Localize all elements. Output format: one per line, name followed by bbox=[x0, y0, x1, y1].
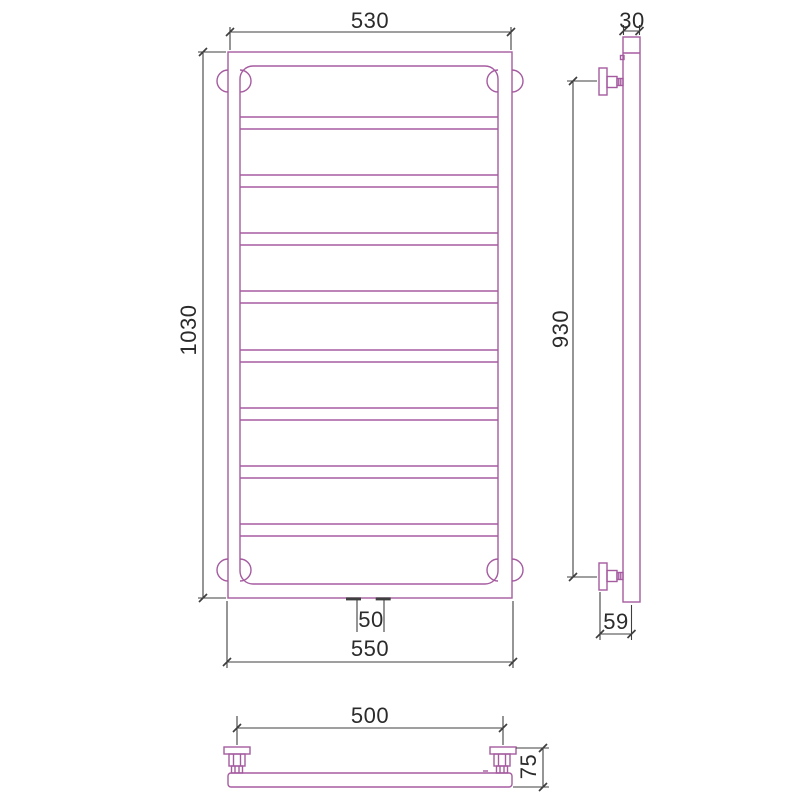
bracket-stem bbox=[494, 754, 510, 766]
dimension-label-500: 500 bbox=[351, 703, 389, 728]
bracket-arc-bottom-right-outer bbox=[512, 559, 523, 581]
dimension-label-1030: 1030 bbox=[176, 305, 201, 356]
rung-8 bbox=[240, 524, 498, 536]
bottom-bracket-left bbox=[224, 747, 250, 773]
rung-5 bbox=[240, 350, 498, 362]
dimension-label-75: 75 bbox=[516, 754, 541, 779]
rung-6 bbox=[240, 408, 498, 420]
wall-plate bbox=[490, 747, 516, 754]
dimension-label-530: 530 bbox=[351, 8, 389, 33]
dimension-label-50: 50 bbox=[358, 607, 383, 632]
rung-3 bbox=[240, 233, 498, 245]
bracket-arc-top-right-outer bbox=[512, 70, 523, 92]
dimension-bottom-bracket-spacing: 500 bbox=[233, 703, 507, 745]
wall-plate bbox=[599, 563, 607, 590]
drawing-canvas: 530 1030 50 550 30 bbox=[0, 0, 800, 800]
dimension-label-30: 30 bbox=[619, 8, 644, 33]
bracket-collar-detail bbox=[619, 79, 621, 86]
bottom-bracket-right bbox=[490, 747, 516, 773]
bracket-stem bbox=[229, 754, 245, 766]
front-view bbox=[217, 52, 523, 598]
front-inner-frame bbox=[240, 66, 498, 584]
bracket-stem bbox=[607, 77, 617, 88]
dimension-front-height: 1030 bbox=[176, 48, 226, 602]
dimension-front-width-top: 530 bbox=[226, 8, 515, 50]
rung-7 bbox=[240, 466, 498, 478]
bracket-collar bbox=[497, 766, 508, 773]
bracket-collar bbox=[617, 79, 623, 86]
bracket-stem bbox=[607, 571, 617, 582]
dimension-label-550: 550 bbox=[351, 636, 389, 661]
technical-drawing: 530 1030 50 550 30 bbox=[0, 0, 800, 800]
bottom-tube bbox=[228, 773, 512, 787]
bracket-collar-detail bbox=[619, 573, 621, 580]
dimension-side-bracket-span: 930 bbox=[548, 77, 597, 581]
side-tube bbox=[623, 37, 640, 602]
rung-2 bbox=[240, 175, 498, 187]
wall-plate bbox=[224, 747, 250, 754]
rung-1 bbox=[240, 117, 498, 129]
wall-plate bbox=[599, 68, 607, 95]
dimension-label-930: 930 bbox=[548, 310, 573, 348]
dimension-side-tube-width: 30 bbox=[619, 8, 644, 35]
dimension-wall-offset: 59 bbox=[596, 592, 636, 640]
bracket-collar bbox=[617, 573, 623, 580]
bracket-collar bbox=[232, 766, 243, 773]
bottom-view bbox=[224, 747, 516, 787]
dimension-bottom-depth: 75 bbox=[513, 744, 549, 791]
front-outer-frame bbox=[228, 52, 512, 598]
side-bracket-bottom bbox=[599, 563, 623, 590]
bracket-arc-bottom-left-outer bbox=[217, 559, 228, 581]
dimension-connection-spacing: 50 bbox=[346, 597, 391, 632]
bracket-stem-detail bbox=[234, 754, 241, 766]
rung-4 bbox=[240, 291, 498, 303]
side-vent-tick bbox=[621, 56, 625, 60]
dimension-label-59: 59 bbox=[603, 609, 628, 634]
bracket-collar-detail bbox=[235, 766, 239, 773]
bracket-arc-top-left-outer bbox=[217, 70, 228, 92]
side-bracket-top bbox=[599, 68, 623, 95]
bracket-collar-detail bbox=[500, 766, 504, 773]
dimensions: 530 1030 50 550 30 bbox=[176, 8, 645, 791]
side-view bbox=[599, 37, 640, 602]
bracket-stem-detail bbox=[499, 754, 506, 766]
